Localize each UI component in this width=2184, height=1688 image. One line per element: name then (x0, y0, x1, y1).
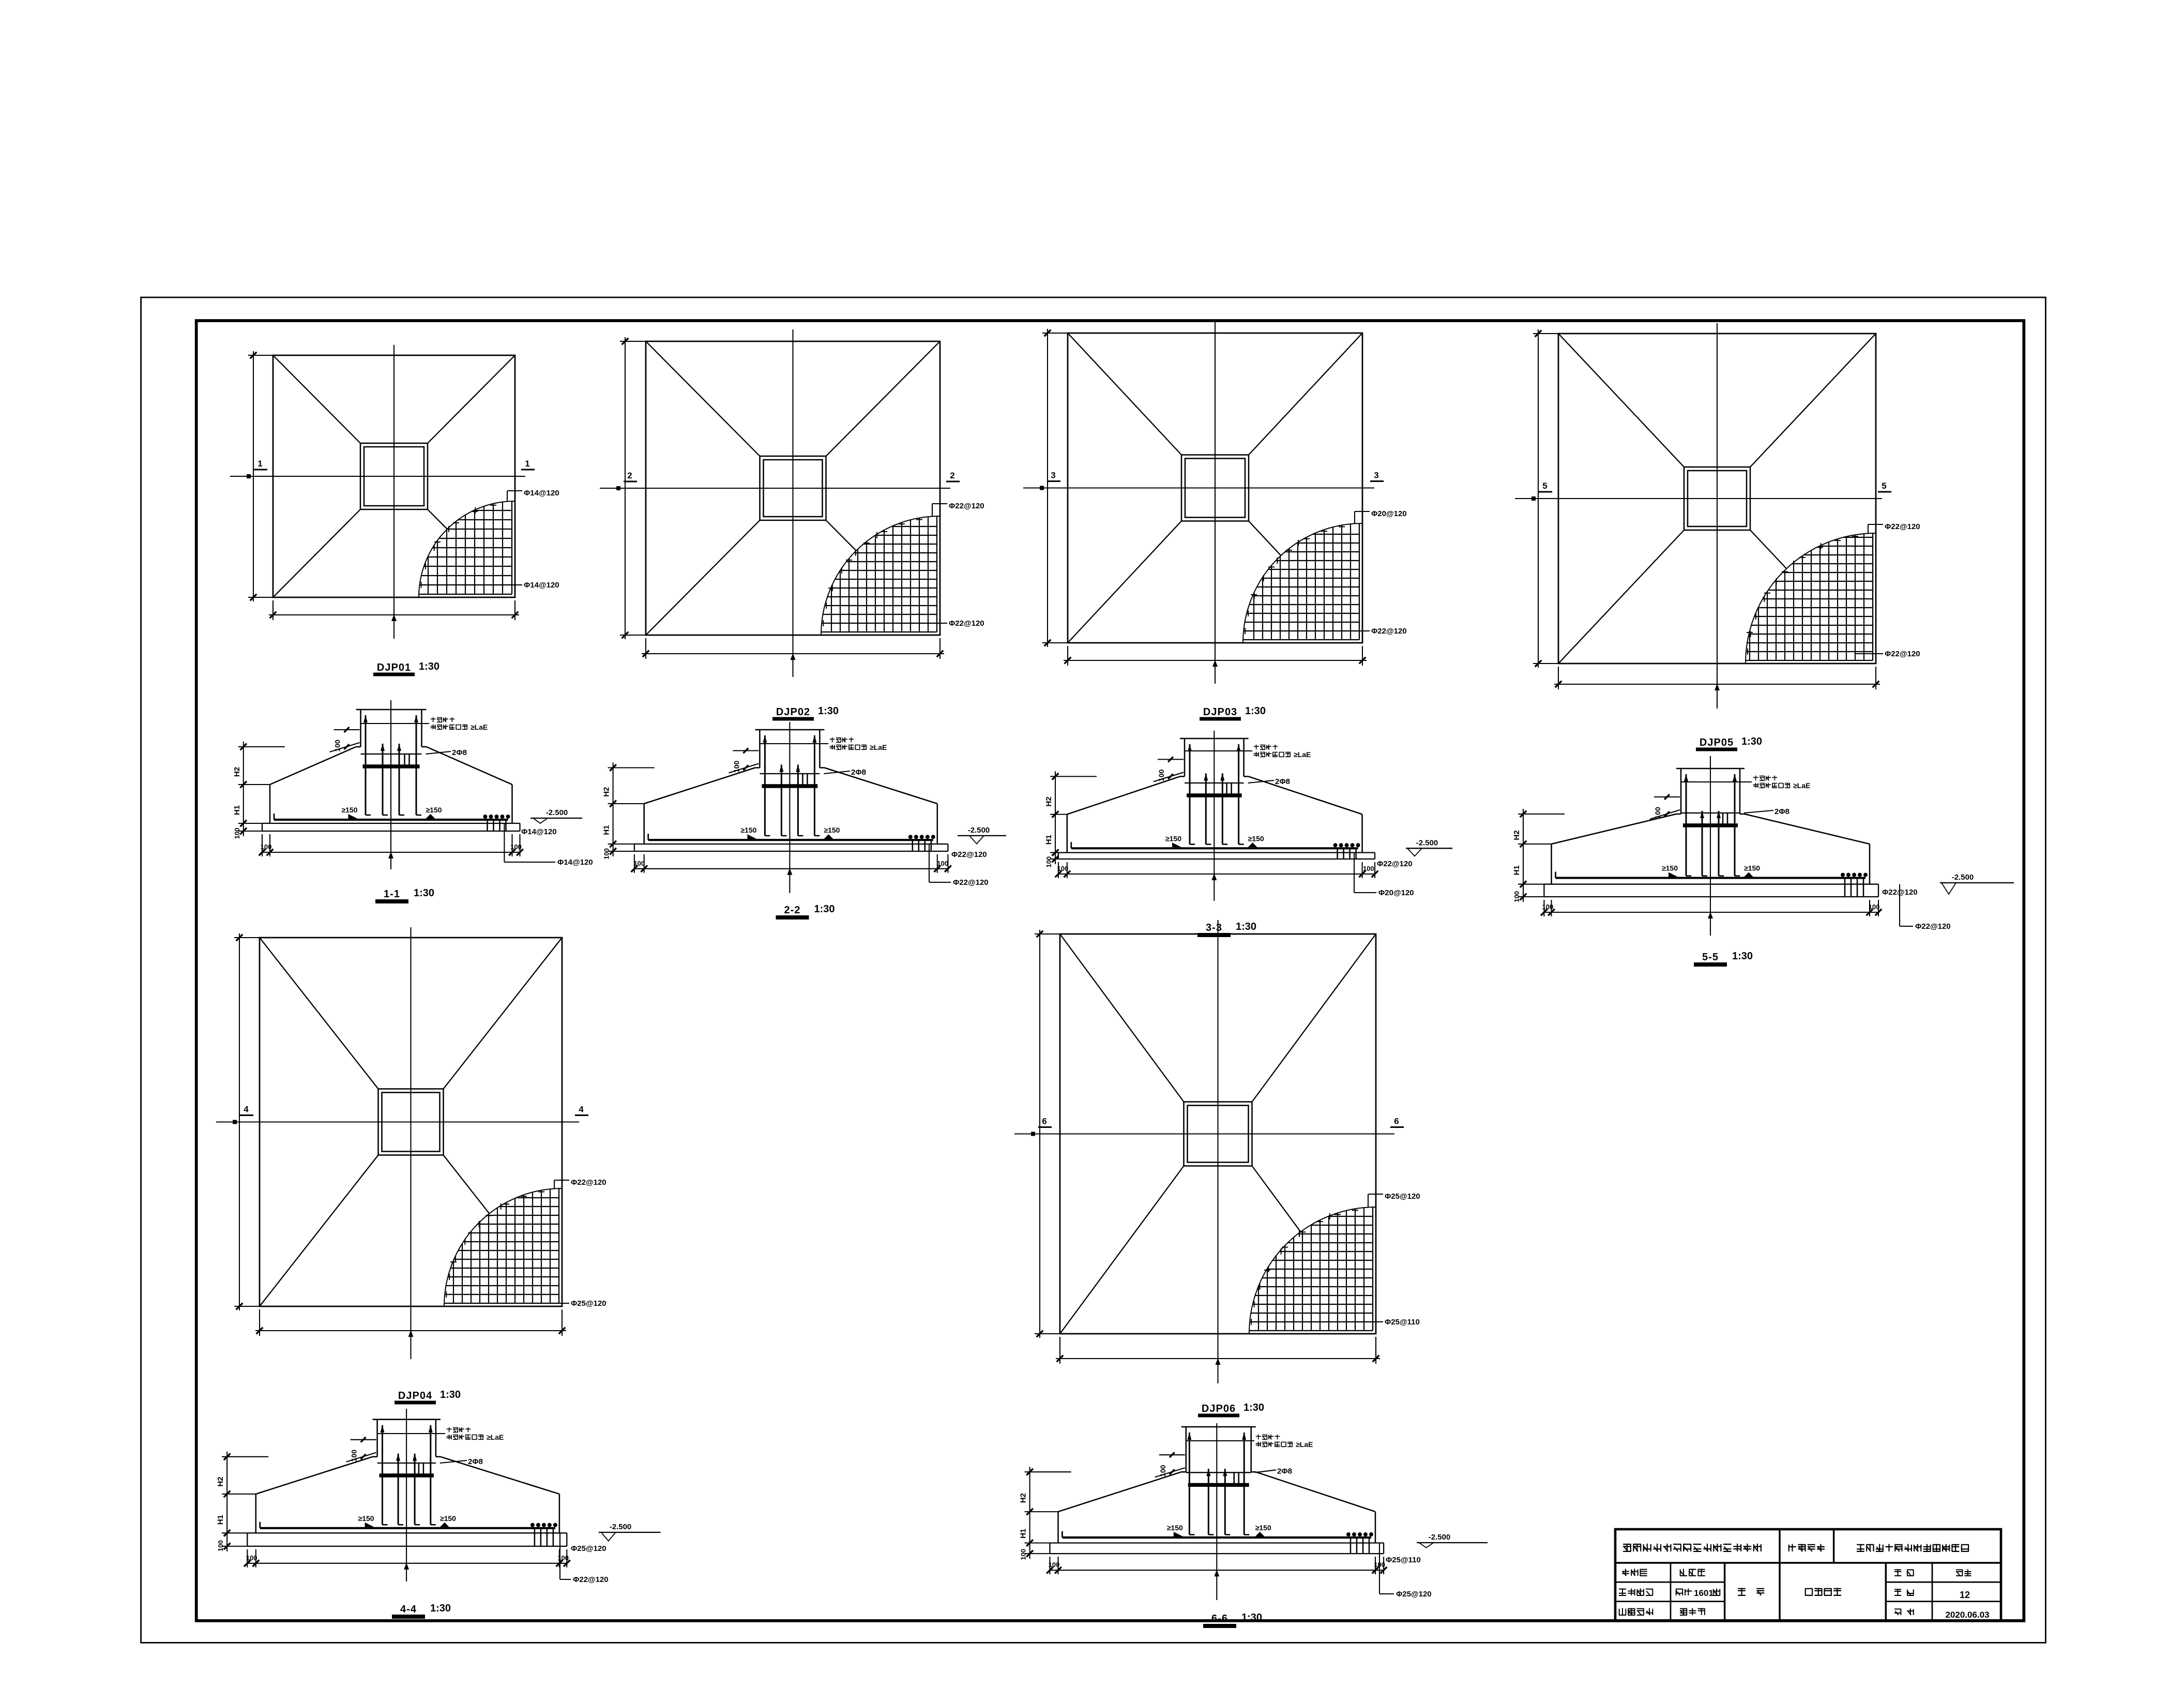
svg-text:1:30: 1:30 (814, 903, 835, 915)
svg-text:≥LaE: ≥LaE (1294, 750, 1311, 759)
svg-text:DJP03: DJP03 (1203, 706, 1237, 718)
svg-text:H1: H1 (1044, 835, 1053, 845)
svg-text:≥150: ≥150 (1248, 834, 1264, 842)
svg-text:4: 4 (579, 1105, 584, 1114)
svg-text:1: 1 (525, 459, 529, 469)
svg-text:H1: H1 (1512, 865, 1521, 875)
svg-text:100: 100 (1363, 865, 1374, 872)
svg-text:DJP05: DJP05 (1700, 737, 1734, 748)
svg-text:H2: H2 (233, 767, 241, 777)
svg-text:1:30: 1:30 (1241, 1612, 1262, 1623)
svg-text:Φ22@120: Φ22@120 (1915, 922, 1951, 931)
svg-text:12: 12 (1960, 1590, 1970, 1600)
svg-text:Φ14@120: Φ14@120 (521, 827, 557, 836)
svg-text:≥LaE: ≥LaE (1296, 1440, 1313, 1449)
svg-text:1:30: 1:30 (1245, 705, 1266, 717)
svg-text:≥150: ≥150 (1744, 864, 1760, 872)
svg-text:1:30: 1:30 (430, 1603, 451, 1614)
svg-text:100: 100 (732, 761, 740, 773)
svg-text:1:30: 1:30 (1236, 921, 1256, 932)
svg-text:Φ14@120: Φ14@120 (524, 489, 559, 498)
svg-text:Φ22@120: Φ22@120 (573, 1575, 609, 1584)
svg-text:100: 100 (333, 740, 342, 752)
svg-text:DJP04: DJP04 (398, 1390, 432, 1401)
svg-text:6: 6 (1394, 1117, 1399, 1126)
svg-text:100: 100 (603, 848, 611, 860)
svg-text:2Φ8: 2Φ8 (851, 768, 866, 777)
svg-text:DJP06: DJP06 (1202, 1403, 1236, 1414)
svg-text:H1: H1 (1019, 1529, 1028, 1539)
svg-text:≥150: ≥150 (824, 826, 840, 834)
svg-text:-2.500: -2.500 (1952, 873, 1974, 882)
svg-text:Φ22@120: Φ22@120 (1371, 627, 1407, 636)
svg-text:Φ25@120: Φ25@120 (571, 1544, 606, 1553)
svg-text:4: 4 (244, 1105, 249, 1114)
svg-text:≥LaE: ≥LaE (471, 723, 488, 731)
svg-text:100: 100 (1542, 903, 1554, 911)
svg-text:100: 100 (557, 1554, 569, 1562)
svg-text:-2.500: -2.500 (610, 1523, 632, 1531)
svg-text:≥150: ≥150 (426, 806, 442, 814)
svg-text:Φ14@120: Φ14@120 (557, 858, 593, 867)
svg-text:2020.06.03: 2020.06.03 (1945, 1610, 1989, 1620)
svg-text:Φ25@110: Φ25@110 (1385, 1318, 1420, 1327)
svg-text:3: 3 (1051, 471, 1055, 480)
svg-text:3: 3 (1374, 471, 1378, 480)
svg-text:2: 2 (950, 471, 954, 480)
svg-text:≥LaE: ≥LaE (487, 1433, 504, 1441)
svg-text:2Φ8: 2Φ8 (452, 748, 467, 757)
svg-text:1:30: 1:30 (419, 661, 439, 672)
svg-text:-2.500: -2.500 (1429, 1533, 1451, 1542)
svg-text:6-6: 6-6 (1211, 1613, 1228, 1624)
svg-text:100: 100 (1057, 865, 1069, 872)
svg-text:1:30: 1:30 (440, 1389, 461, 1400)
svg-text:Φ25@120: Φ25@120 (571, 1299, 606, 1308)
svg-text:1:30: 1:30 (818, 705, 839, 717)
svg-text:Φ20@120: Φ20@120 (1371, 509, 1407, 518)
svg-text:100: 100 (1374, 1561, 1385, 1569)
svg-text:-2.500: -2.500 (1416, 838, 1438, 847)
svg-text:Φ22@120: Φ22@120 (1885, 650, 1920, 658)
svg-text:H1: H1 (216, 1515, 225, 1525)
svg-text:H2: H2 (1019, 1493, 1028, 1503)
svg-text:5-5: 5-5 (1702, 952, 1719, 963)
svg-text:Φ22@120: Φ22@120 (1377, 860, 1413, 868)
svg-text:≥150: ≥150 (358, 1514, 374, 1523)
svg-text:1: 1 (257, 459, 262, 469)
svg-text:100: 100 (1159, 1465, 1167, 1477)
svg-text:6: 6 (1042, 1117, 1046, 1126)
svg-text:H2: H2 (1512, 830, 1521, 840)
svg-text:Φ14@120: Φ14@120 (524, 581, 559, 590)
svg-text:100: 100 (937, 860, 948, 867)
svg-text:1:30: 1:30 (1741, 736, 1762, 747)
svg-text:2: 2 (627, 471, 632, 480)
svg-text:3-3: 3-3 (1206, 922, 1222, 933)
svg-text:2Φ8: 2Φ8 (1277, 1467, 1292, 1475)
svg-text:4-4: 4-4 (400, 1604, 417, 1615)
svg-text:-2.500: -2.500 (968, 826, 990, 835)
svg-text:100: 100 (1049, 1561, 1060, 1569)
svg-text:1:30: 1:30 (1732, 951, 1753, 962)
svg-text:100: 100 (1513, 891, 1521, 902)
svg-text:Φ22@120: Φ22@120 (949, 619, 984, 628)
svg-text:5: 5 (1882, 481, 1886, 491)
svg-text:2Φ8: 2Φ8 (468, 1457, 483, 1466)
svg-text:100: 100 (633, 860, 645, 867)
svg-text:≥LaE: ≥LaE (870, 743, 887, 751)
svg-text:1601: 1601 (1694, 1588, 1713, 1598)
svg-text:DJP02: DJP02 (776, 706, 810, 718)
svg-text:Φ25@110: Φ25@110 (1386, 1556, 1421, 1564)
svg-text:Φ25@120: Φ25@120 (1396, 1590, 1432, 1599)
svg-text:H2: H2 (602, 787, 611, 797)
svg-text:≥150: ≥150 (740, 826, 756, 834)
svg-text:Φ22@120: Φ22@120 (949, 502, 984, 510)
svg-text:≥150: ≥150 (1167, 1524, 1183, 1532)
svg-text:2Φ8: 2Φ8 (1275, 777, 1290, 786)
svg-text:2Φ8: 2Φ8 (1775, 807, 1789, 816)
svg-text:100: 100 (246, 1554, 257, 1562)
svg-text:5: 5 (1542, 481, 1547, 491)
svg-text:H2: H2 (1044, 796, 1053, 806)
svg-text:100: 100 (350, 1450, 358, 1462)
svg-text:H1: H1 (602, 825, 611, 835)
svg-text:Φ22@120: Φ22@120 (1885, 522, 1920, 531)
svg-text:1-1: 1-1 (384, 888, 400, 900)
svg-text:Φ20@120: Φ20@120 (1378, 888, 1414, 897)
svg-text:≥150: ≥150 (1255, 1524, 1271, 1532)
svg-text:Φ22@120: Φ22@120 (951, 850, 987, 859)
svg-text:100: 100 (261, 843, 272, 851)
svg-text:≥150: ≥150 (1165, 834, 1181, 842)
svg-text:Φ22@120: Φ22@120 (571, 1178, 606, 1187)
svg-text:1:30: 1:30 (414, 887, 434, 899)
svg-text:Φ25@120: Φ25@120 (1385, 1192, 1420, 1201)
svg-text:100: 100 (233, 828, 241, 839)
svg-text:-2.500: -2.500 (546, 808, 568, 817)
svg-text:100: 100 (1020, 1549, 1027, 1560)
svg-text:100: 100 (510, 843, 522, 851)
svg-text:2-2: 2-2 (784, 905, 801, 916)
svg-text:≥150: ≥150 (1662, 864, 1678, 872)
svg-text:Φ22@120: Φ22@120 (953, 878, 989, 887)
svg-text:≥LaE: ≥LaE (1793, 781, 1810, 790)
svg-text:≥150: ≥150 (341, 806, 357, 814)
svg-text:100: 100 (1157, 770, 1165, 782)
svg-text:H2: H2 (216, 1476, 225, 1486)
svg-text:100: 100 (1869, 903, 1880, 911)
svg-text:100: 100 (217, 1540, 224, 1551)
svg-text:100: 100 (1654, 807, 1662, 819)
svg-text:≥150: ≥150 (440, 1514, 456, 1523)
svg-text:1:30: 1:30 (1243, 1402, 1264, 1413)
svg-text:100: 100 (1045, 856, 1053, 868)
svg-text:H1: H1 (233, 805, 241, 815)
svg-text:DJP01: DJP01 (377, 662, 411, 673)
